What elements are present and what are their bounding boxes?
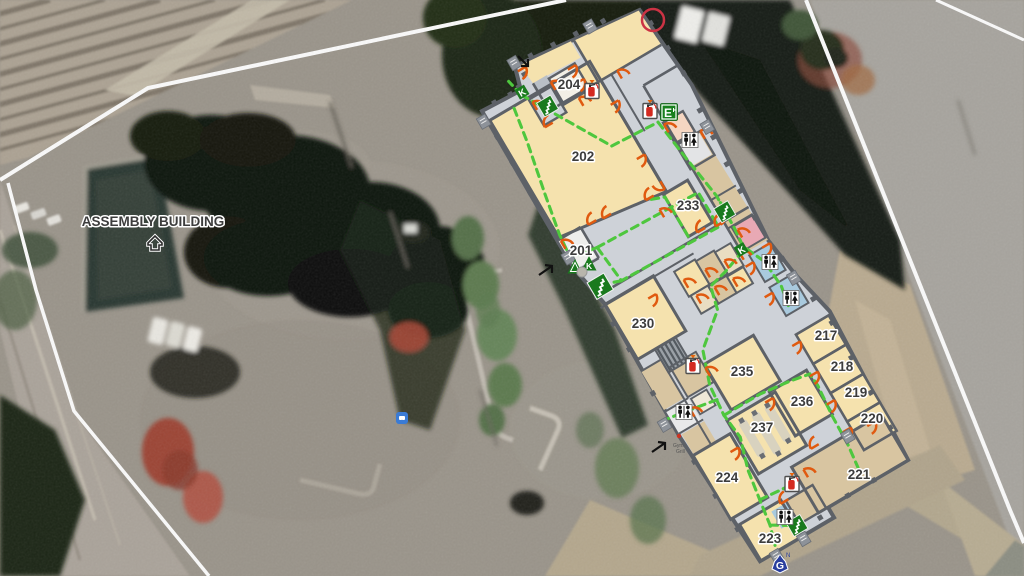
svg-text:220: 220 (861, 411, 884, 426)
svg-text:233: 233 (677, 198, 700, 213)
svg-text:201: 201 (570, 243, 593, 258)
svg-text:N: N (786, 553, 790, 559)
svg-text:219: 219 (845, 385, 868, 400)
svg-text:ASSEMBLY BUILDING: ASSEMBLY BUILDING (82, 214, 225, 229)
svg-text:230: 230 (632, 316, 655, 331)
svg-text:217: 217 (815, 328, 838, 343)
svg-text:204: 204 (558, 77, 581, 92)
svg-text:218: 218 (831, 359, 854, 374)
svg-text:221: 221 (848, 467, 871, 482)
svg-text:237: 237 (751, 420, 774, 435)
svg-text:224: 224 (716, 470, 739, 485)
svg-text:202: 202 (572, 149, 595, 164)
svg-text:236: 236 (791, 394, 814, 409)
svg-text:235: 235 (731, 364, 754, 379)
svg-text:Grill: Grill (676, 449, 685, 455)
svg-text:223: 223 (759, 531, 782, 546)
